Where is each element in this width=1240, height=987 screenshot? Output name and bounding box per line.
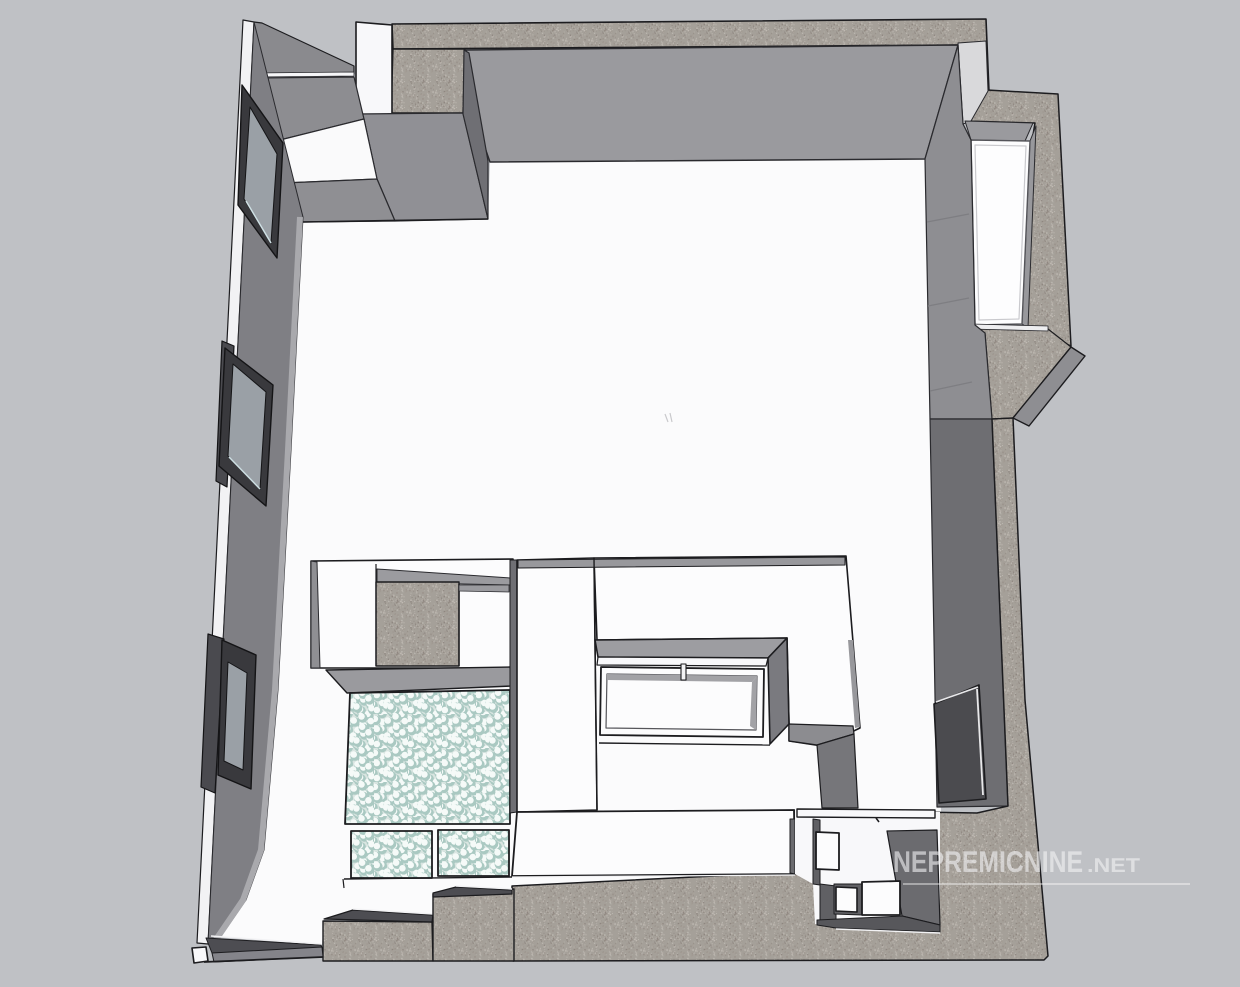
svg-text:NEPREMICNINE: NEPREMICNINE	[893, 846, 1083, 879]
svg-text:.NET: .NET	[1087, 855, 1140, 877]
